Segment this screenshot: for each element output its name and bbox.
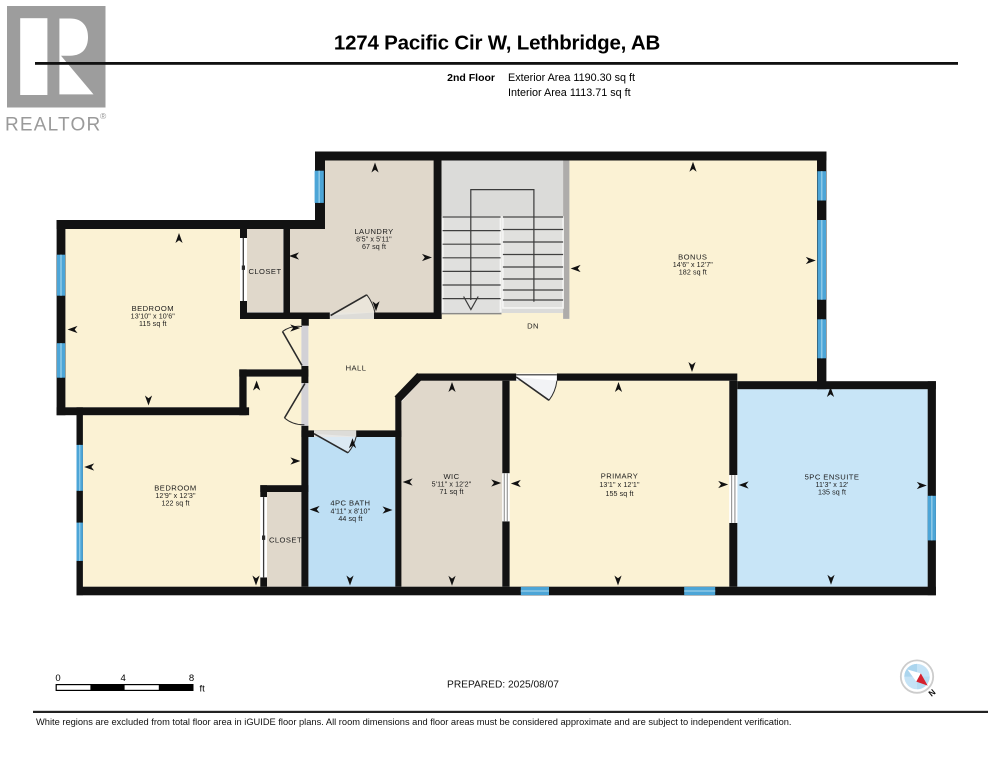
svg-text:PRIMARY: PRIMARY <box>601 472 639 481</box>
svg-text:135 sq ft: 135 sq ft <box>818 489 846 497</box>
svg-text:ft: ft <box>200 684 206 695</box>
svg-text:4PC BATH: 4PC BATH <box>330 499 370 508</box>
svg-text:115 sq ft: 115 sq ft <box>139 320 167 328</box>
svg-text:DN: DN <box>527 322 539 331</box>
svg-text:4: 4 <box>121 673 126 684</box>
svg-text:122 sq ft: 122 sq ft <box>161 500 189 508</box>
svg-text:71 sq ft: 71 sq ft <box>439 488 463 496</box>
svg-text:1274 Pacific Cir W, Lethbridge: 1274 Pacific Cir W, Lethbridge, AB <box>334 32 660 55</box>
svg-text:HALL: HALL <box>346 364 367 373</box>
svg-text:White regions are excluded fro: White regions are excluded from total fl… <box>36 717 792 727</box>
svg-text:Interior Area 1113.71 sq ft: Interior Area 1113.71 sq ft <box>508 87 631 99</box>
svg-text:CLOSET: CLOSET <box>248 267 281 276</box>
svg-text:2nd Floor: 2nd Floor <box>447 72 495 84</box>
svg-text:44 sq ft: 44 sq ft <box>338 515 362 523</box>
svg-text:PREPARED: 2025/08/07: PREPARED: 2025/08/07 <box>447 680 559 691</box>
svg-text:N: N <box>926 687 937 699</box>
svg-text:®: ® <box>100 111 107 121</box>
svg-text:182 sq ft: 182 sq ft <box>679 269 707 277</box>
svg-text:67 sq ft: 67 sq ft <box>362 243 386 251</box>
svg-text:REALTOR: REALTOR <box>5 115 101 136</box>
svg-text:CLOSET: CLOSET <box>269 536 302 545</box>
svg-text:155 sq ft: 155 sq ft <box>605 490 633 498</box>
svg-text:13'1" x 12'1": 13'1" x 12'1" <box>599 481 640 489</box>
svg-text:0: 0 <box>55 673 60 684</box>
svg-text:Exterior Area 1190.30 sq ft: Exterior Area 1190.30 sq ft <box>508 72 635 84</box>
svg-text:8: 8 <box>189 673 194 684</box>
